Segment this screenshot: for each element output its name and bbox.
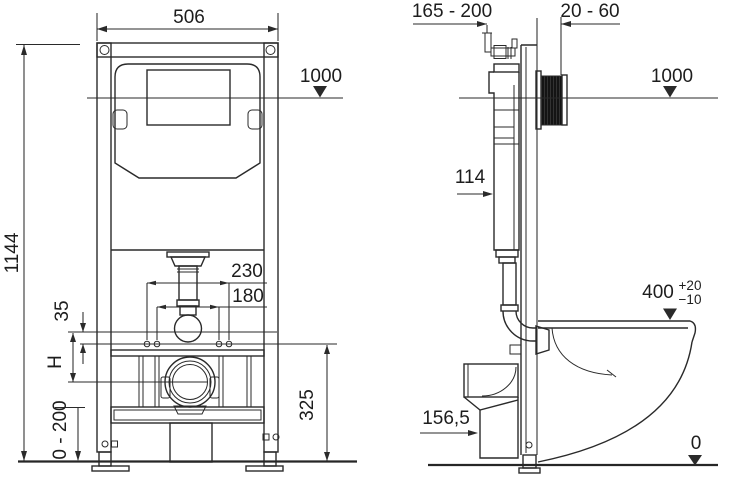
side-cistern bbox=[489, 64, 549, 354]
dim-1144-label: 1144 bbox=[2, 232, 23, 273]
dim-400-label: 400 bbox=[642, 282, 674, 303]
front-view: 506 1144 1000 230 180 bbox=[2, 7, 357, 471]
dim-depth-range: 165 - 200 bbox=[412, 1, 492, 27]
drawing-canvas: 506 1144 1000 230 180 bbox=[0, 0, 734, 479]
dim-506-label: 506 bbox=[173, 7, 205, 28]
dim-156-5-label: 156,5 bbox=[422, 408, 470, 429]
dim-1000-side-label: 1000 bbox=[651, 66, 693, 87]
sleeve-hatch bbox=[541, 76, 562, 125]
dim-0-label: 0 bbox=[691, 433, 702, 454]
frame-hole-right-icon bbox=[266, 46, 275, 55]
level-triangle-icon bbox=[663, 309, 677, 321]
dim-400-tol-minus: −10 bbox=[679, 292, 702, 307]
dim-front-width: 506 bbox=[97, 7, 278, 41]
dim-wall-range: 20 - 60 bbox=[560, 1, 620, 75]
dim-20-60-label: 20 - 60 bbox=[560, 1, 619, 22]
dim-drain-height: 156,5 bbox=[420, 408, 478, 436]
dim-outlet-height: 325 bbox=[297, 345, 330, 461]
level-triangle-icon bbox=[313, 86, 327, 98]
toilet-bowl bbox=[538, 321, 695, 462]
dim-400-tol-plus: +20 bbox=[679, 278, 702, 293]
dim-114-label: 114 bbox=[455, 167, 486, 188]
dim-325-label: 325 bbox=[297, 389, 318, 421]
front-cistern bbox=[113, 64, 262, 178]
side-view: 165 - 200 20 - 60 1000 114 400 +20 −10 bbox=[412, 1, 718, 473]
dim-front-height: 1144 bbox=[2, 45, 80, 462]
frame-hole-left-icon bbox=[100, 46, 109, 55]
dim-foot-range: 0 - 200 bbox=[50, 400, 85, 461]
dim-bowl-height: 400 +20 −10 bbox=[642, 278, 701, 320]
technical-drawing: 506 1144 1000 230 180 bbox=[0, 0, 734, 484]
front-reference-lines bbox=[68, 332, 337, 382]
dim-cistern-depth: 114 bbox=[455, 167, 493, 197]
wall-sleeve bbox=[536, 71, 567, 129]
dim-35-label: 35 bbox=[52, 300, 73, 321]
dim-1000-front-label: 1000 bbox=[300, 66, 342, 87]
water-supply-fitting bbox=[482, 25, 517, 59]
side-level-zero: 0 bbox=[688, 433, 702, 466]
dim-180-label: 180 bbox=[232, 286, 264, 307]
bowl-inlet-spud bbox=[536, 326, 549, 354]
side-level-1000: 1000 bbox=[459, 66, 718, 98]
flush-elbow-circle bbox=[175, 315, 202, 342]
front-lower-structure bbox=[102, 350, 279, 462]
dim-230-label: 230 bbox=[231, 261, 263, 282]
dim-h-label: H bbox=[45, 355, 66, 369]
front-level-1000: 1000 bbox=[87, 66, 343, 98]
dim-165-200-label: 165 - 200 bbox=[412, 1, 492, 22]
floor-drain-elbow bbox=[464, 364, 518, 458]
bottom-bracket-box bbox=[170, 423, 212, 462]
dim-outlet-h: H bbox=[45, 333, 76, 382]
dim-0-200-label: 0 - 200 bbox=[50, 400, 71, 459]
level-triangle-icon bbox=[663, 86, 677, 98]
